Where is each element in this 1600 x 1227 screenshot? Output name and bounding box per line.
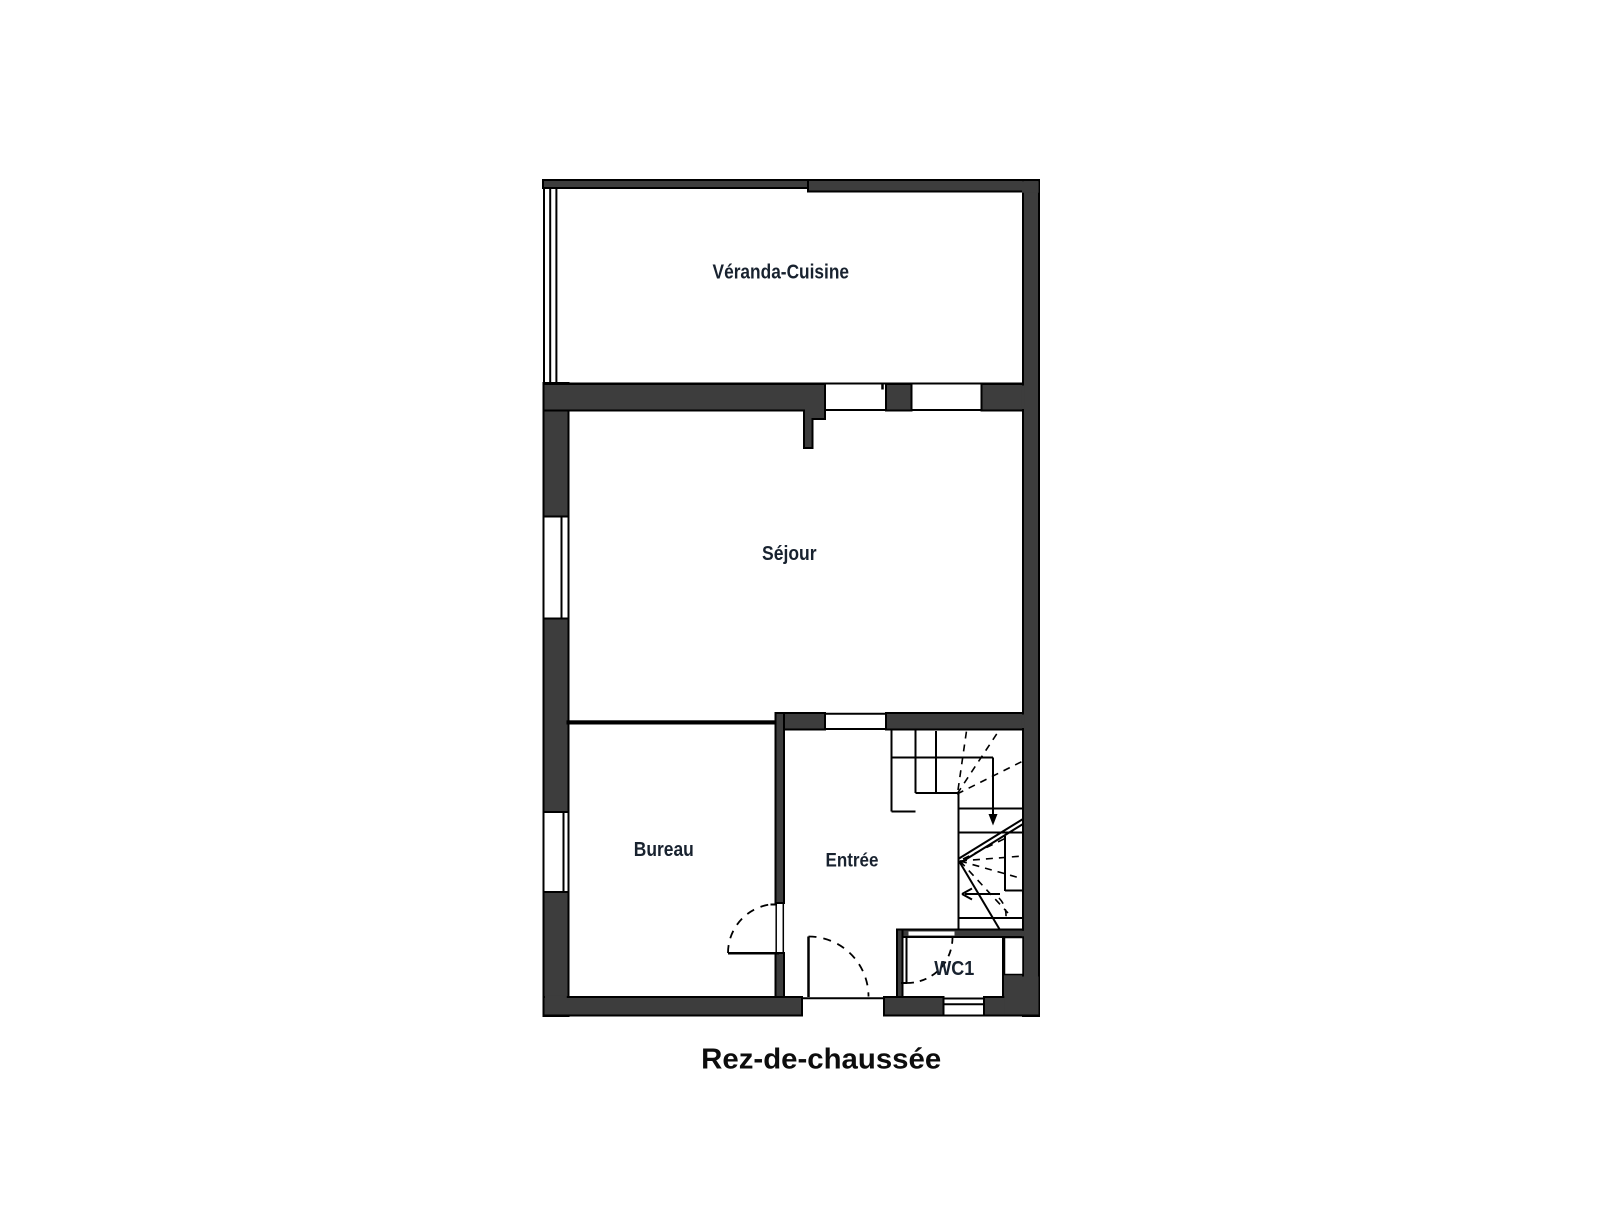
svg-text:Véranda-Cuisine: Véranda-Cuisine bbox=[713, 262, 850, 284]
svg-text:Bureau: Bureau bbox=[634, 839, 694, 861]
svg-text:Entrée: Entrée bbox=[826, 851, 879, 872]
svg-text:Séjour: Séjour bbox=[762, 543, 817, 565]
svg-text:Rez-de-chaussée: Rez-de-chaussée bbox=[701, 1043, 941, 1075]
svg-text:WC1: WC1 bbox=[934, 958, 974, 980]
